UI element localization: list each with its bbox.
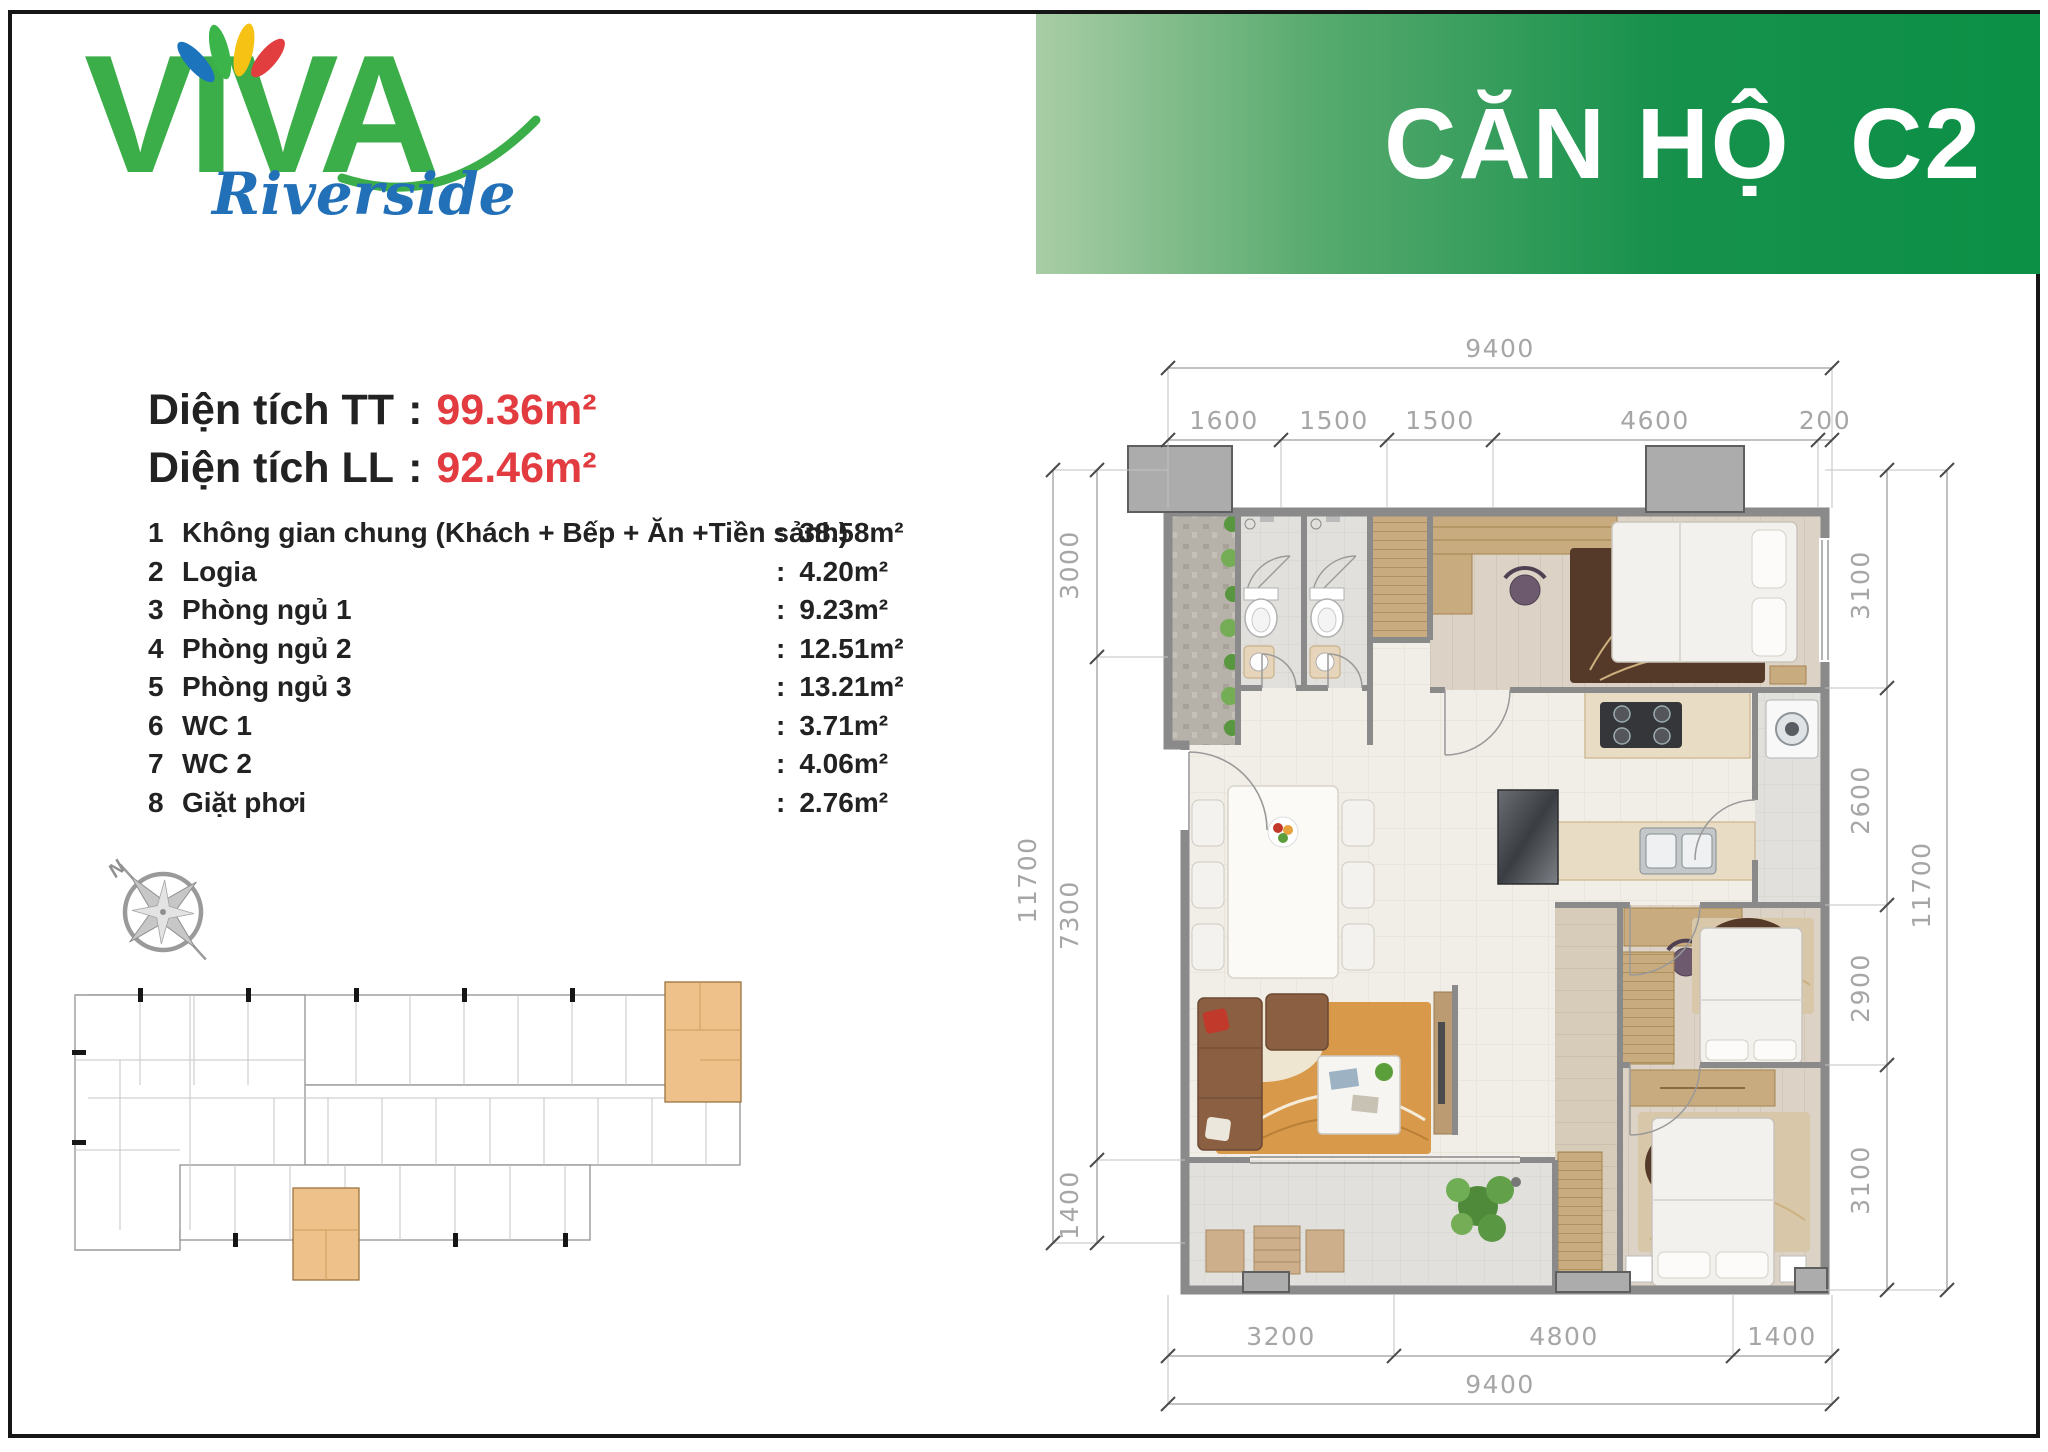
room-number: 1 <box>148 514 182 553</box>
chair <box>1192 924 1224 970</box>
brand-logo-subtext: Riverside <box>212 160 516 228</box>
window-gap <box>1819 538 1831 662</box>
pillow <box>1754 1040 1796 1060</box>
room-label: WC 1 <box>182 710 252 741</box>
chair <box>1342 862 1374 908</box>
area-summary: Diện tích TT:99.36m² Diện tích LL:92.46m… <box>148 386 597 502</box>
room-area-value: 4.06m² <box>799 748 888 779</box>
pillow <box>1716 1252 1768 1278</box>
area-value: 92.46m² <box>436 444 596 492</box>
room-number: 7 <box>148 745 182 784</box>
room-entry-hall <box>1238 688 1370 745</box>
toilet-tank <box>1244 588 1278 600</box>
dim-label: 11700 <box>1013 836 1042 923</box>
area-label: Diện tích LL <box>148 444 394 492</box>
room-area-value: 12.51m² <box>799 633 903 664</box>
colon: : <box>776 710 785 741</box>
colon: : <box>776 787 785 818</box>
dim-label: 2900 <box>1846 953 1875 1023</box>
logo-petals-icon <box>168 16 298 100</box>
room-area-value: 3.71m² <box>799 710 888 741</box>
chair <box>1342 924 1374 970</box>
column <box>1556 1272 1630 1292</box>
chair <box>1342 800 1374 846</box>
colon: : <box>776 748 785 779</box>
area-label: Diện tích TT <box>148 386 394 434</box>
living-room-furniture <box>1198 992 1454 1154</box>
sink <box>1250 653 1268 671</box>
dim-label: 1400 <box>1055 1170 1084 1240</box>
colon: : <box>408 444 422 492</box>
wardrobe-closet <box>1558 1152 1602 1288</box>
column <box>1646 446 1744 512</box>
dim-label: 3100 <box>1846 550 1875 620</box>
dim-label: 1500 <box>1299 406 1369 435</box>
dim-label: 3000 <box>1055 530 1084 600</box>
room-list-item: 4Phòng ngủ 2:12.51m² <box>148 630 948 669</box>
room-area-value: 9.23m² <box>799 594 888 625</box>
overview-highlighted-unit <box>665 982 741 1102</box>
room-label: Phòng ngủ 1 <box>182 594 352 625</box>
room-list-item: 8Giặt phơi:2.76m² <box>148 784 948 823</box>
fridge <box>1498 790 1558 884</box>
room-label: Giặt phơi <box>182 787 306 818</box>
chair <box>1192 800 1224 846</box>
dim-label: 200 <box>1799 406 1851 435</box>
pillow <box>1205 1116 1232 1141</box>
room-list-item: 3Phòng ngủ 1:9.23m² <box>148 591 948 630</box>
dim-label: 1500 <box>1405 406 1475 435</box>
dim-label: 4800 <box>1529 1322 1599 1351</box>
dining-set <box>1192 786 1374 978</box>
colon: : <box>776 671 785 702</box>
room-area-value: 13.21m² <box>799 671 903 702</box>
column <box>1128 446 1232 512</box>
room-number: 5 <box>148 668 182 707</box>
room-number: 4 <box>148 630 182 669</box>
building-overview-plan <box>60 900 760 1300</box>
sink <box>1316 653 1334 671</box>
room-list-item: 1Không gian chung (Khách + Bếp + Ăn +Tiề… <box>148 514 948 553</box>
dim-label: 2600 <box>1846 765 1875 835</box>
room-number: 8 <box>148 784 182 823</box>
dim-label: 7300 <box>1055 880 1084 950</box>
room-label: WC 2 <box>182 748 252 779</box>
apartment-floor-plan: 9400 1600 1500 1500 4600 200 11700 3000 … <box>1000 270 2048 1452</box>
column <box>1795 1268 1827 1292</box>
unit-title-banner: CĂN HỘ C2 <box>1036 14 2040 274</box>
bedroom2-furniture <box>1622 908 1814 1064</box>
flyer-page: VIVA Riverside CĂN HỘ C2 Diện tích TT:99… <box>0 0 2048 1452</box>
pillow <box>1752 598 1786 656</box>
pillow <box>1706 1040 1748 1060</box>
chair <box>1192 862 1224 908</box>
tv <box>1438 1022 1445 1104</box>
colon: : <box>776 556 785 587</box>
room-area-value: 38.58m² <box>799 517 903 548</box>
colon: : <box>776 633 785 664</box>
room-label: Logia <box>182 556 257 587</box>
room-number: 3 <box>148 591 182 630</box>
dim-label: 11700 <box>1907 841 1936 928</box>
compass-north-label: N <box>104 856 130 882</box>
dim-label: 3200 <box>1246 1322 1316 1351</box>
patio-chair <box>1306 1230 1344 1272</box>
room-area-value: 2.76m² <box>799 787 888 818</box>
area-value: 99.36m² <box>436 386 596 434</box>
colon: : <box>408 386 422 434</box>
dim-label: 9400 <box>1465 334 1535 363</box>
dim-label: 1600 <box>1189 406 1259 435</box>
colon: : <box>776 517 785 548</box>
column <box>1243 1272 1289 1292</box>
area-summary-row: Diện tích LL:92.46m² <box>148 444 597 502</box>
room-list-item: 7WC 2:4.06m² <box>148 745 948 784</box>
unit-title: CĂN HỘ C2 <box>1384 87 1982 202</box>
dim-label: 1400 <box>1747 1322 1817 1351</box>
room-list: 1Không gian chung (Khách + Bếp + Ăn +Tiề… <box>148 514 948 822</box>
stool <box>1510 575 1540 605</box>
pillow <box>1752 530 1786 588</box>
dim-label: 3100 <box>1846 1145 1875 1215</box>
overview-lower-wing <box>180 1165 590 1240</box>
armchair <box>1266 994 1328 1050</box>
nightstand <box>1770 666 1806 684</box>
dim-label: 4600 <box>1620 406 1690 435</box>
room-label: Phòng ngủ 3 <box>182 671 352 702</box>
room-label: Không gian chung (Khách + Bếp + Ăn +Tiền… <box>182 517 848 548</box>
patio-chair <box>1206 1230 1244 1272</box>
colon: : <box>776 594 785 625</box>
room-list-item: 6WC 1:3.71m² <box>148 707 948 746</box>
overview-highlighted-unit <box>293 1188 359 1280</box>
room-number: 6 <box>148 707 182 746</box>
dining-table <box>1228 786 1338 978</box>
room-label: Phòng ngủ 2 <box>182 633 352 664</box>
room-number: 2 <box>148 553 182 592</box>
dim-label: 9400 <box>1465 1370 1535 1399</box>
room-area-value: 4.20m² <box>799 556 888 587</box>
room-list-item: 2Logia:4.20m² <box>148 553 948 592</box>
table-plant <box>1375 1063 1393 1081</box>
cooktop <box>1600 702 1682 748</box>
area-summary-row: Diện tích TT:99.36m² <box>148 386 597 444</box>
wardrobe-closet <box>1370 512 1430 640</box>
pillow <box>1658 1252 1710 1278</box>
cabinet <box>1432 554 1472 614</box>
room-list-item: 5Phòng ngủ 3:13.21m² <box>148 668 948 707</box>
toilet-tank <box>1310 588 1344 600</box>
